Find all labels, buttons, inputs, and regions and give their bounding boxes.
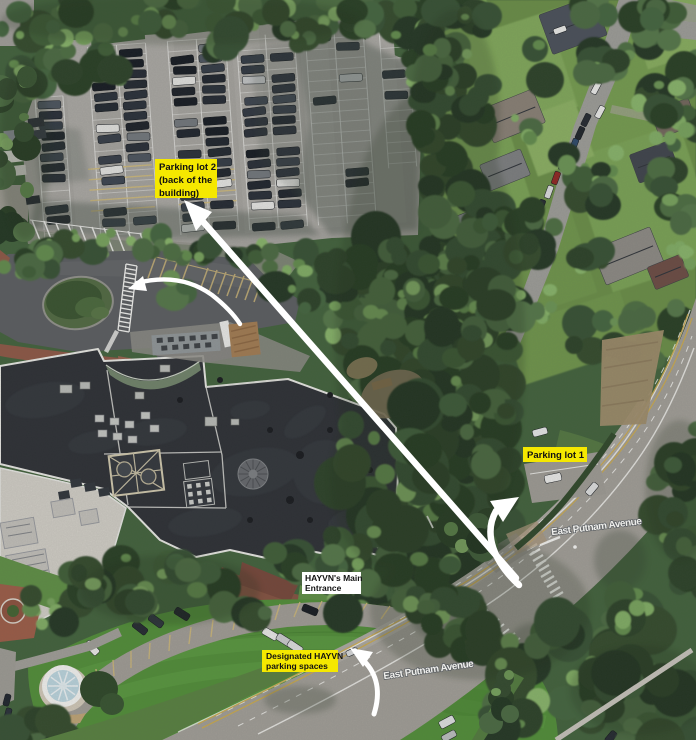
svg-text:Parking lot 2: Parking lot 2 [159, 162, 216, 173]
svg-text:parking spaces: parking spaces [266, 661, 328, 671]
svg-text:(back of the: (back of the [159, 175, 212, 186]
svg-text:Entrance: Entrance [305, 583, 342, 593]
svg-text:HAYVN's Main: HAYVN's Main [305, 573, 362, 583]
svg-text:building): building) [159, 188, 199, 199]
svg-text:Designated HAYVN: Designated HAYVN [266, 651, 343, 661]
svg-text:Parking lot 1: Parking lot 1 [527, 450, 585, 461]
